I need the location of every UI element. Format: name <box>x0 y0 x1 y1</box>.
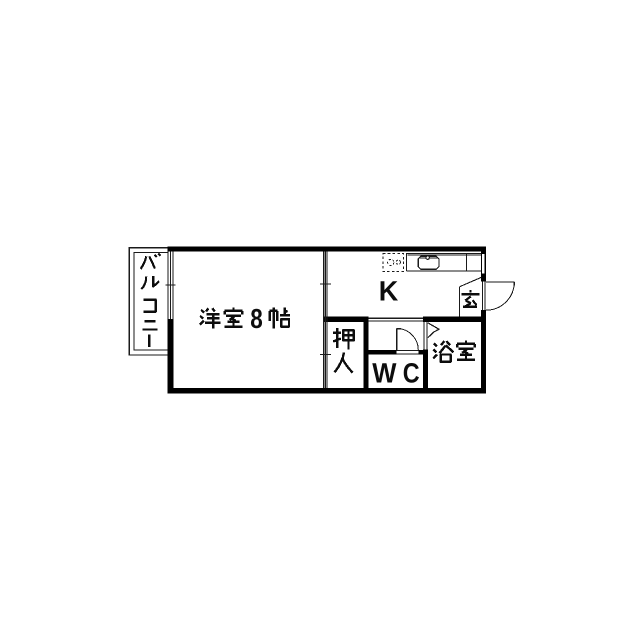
svg-text:8: 8 <box>250 303 263 334</box>
svg-text:K: K <box>379 275 399 306</box>
svg-text:C: C <box>403 357 420 388</box>
svg-text:W: W <box>372 357 397 388</box>
